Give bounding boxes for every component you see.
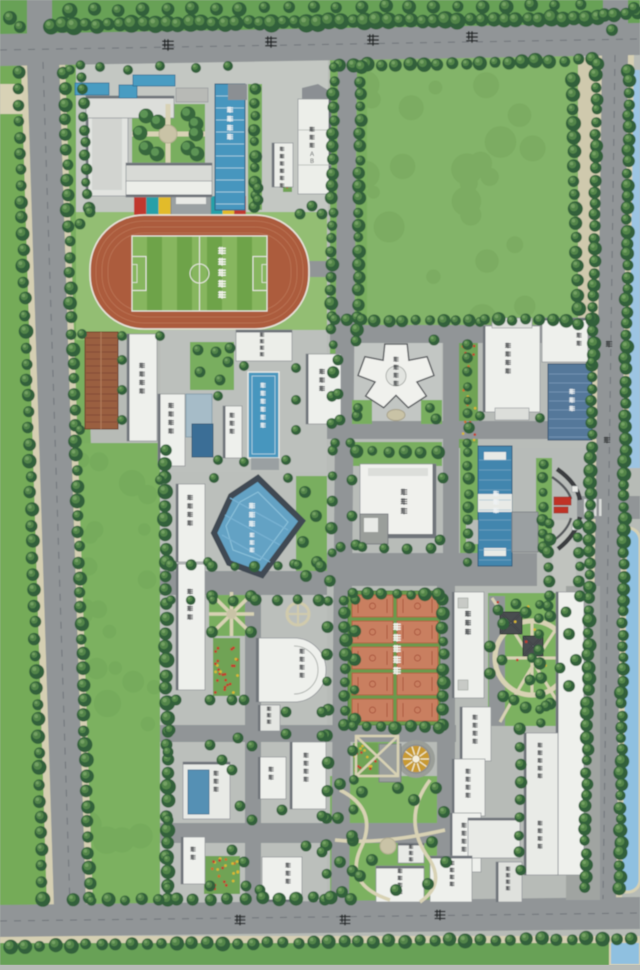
svg-text:B: B	[310, 159, 314, 165]
svg-text:A: A	[310, 152, 314, 158]
